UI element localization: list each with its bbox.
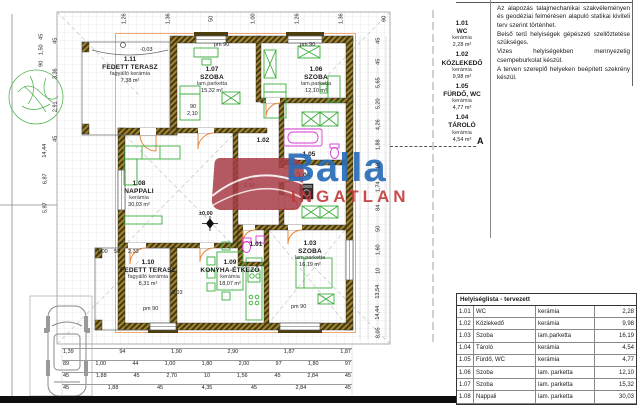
table-cell-number: 1.08: [457, 391, 474, 402]
dimension-value: 1,88: [95, 373, 108, 379]
table-row: 1.04 Tároló kerámia 4,54: [457, 343, 636, 355]
dimension-value: 45: [132, 373, 140, 379]
legend-room-area: 2,28 m²: [434, 42, 490, 48]
table-row: 1.05 Fürdő, WC kerámia 4,77: [457, 355, 636, 367]
dimension-chain-row: 451,88454,35452,8445: [62, 384, 352, 391]
legend-entry: 1.02 KÖZLEKEDŐ kerámia 9,98 m²: [434, 51, 490, 79]
table-cell-name: Szoba: [474, 330, 536, 341]
table-row: 1.02 Közlekedő kerámia 9,98: [457, 318, 636, 330]
dimension-value: 45: [39, 34, 45, 40]
table-cell-area: 12,10: [595, 367, 636, 378]
dimension-value: 1,74: [376, 182, 382, 193]
legend-room-material: kerámia: [434, 67, 490, 74]
dimension-value: 1,50: [39, 45, 45, 56]
lintel-mark: pm 90: [291, 304, 306, 310]
table-cell-number: 1.04: [457, 343, 474, 354]
panel-divider-line: [490, 0, 491, 238]
legend-room-id: 1.01: [434, 20, 490, 28]
section-marker-a: A: [477, 136, 484, 146]
dimension-value: 1,88: [107, 385, 120, 391]
table-cell-material: kerámia: [536, 355, 595, 366]
room-legend-column: 1.01 WC kerámia 2,28 m² 1.02 KÖZLEKEDŐ k…: [434, 20, 490, 146]
dimension-value: 5,65: [376, 77, 382, 88]
legend-room-area: 9,98 m²: [434, 74, 490, 80]
table-cell-area: 16,19: [595, 330, 636, 341]
table-cell-name: Fürdő, WC: [474, 355, 536, 366]
table-cell-name: Tároló: [474, 343, 536, 354]
dimension-value: 97: [275, 361, 283, 367]
dimension-value: 1,80: [307, 361, 320, 367]
dimension-value: 1,00: [164, 361, 177, 367]
table-cell-area: 4,77: [595, 355, 636, 366]
dimension-value: 97: [344, 361, 352, 367]
dimension-value: 45: [53, 38, 59, 44]
dimension-value: 1,87: [339, 349, 352, 355]
dimension-value: 1,00: [94, 361, 107, 367]
dimension-value: 2,70: [165, 373, 178, 379]
table-cell-material: lam. parketta: [536, 367, 595, 378]
level-mark: ±0,00: [199, 211, 213, 217]
dimension-value: 1,26: [296, 13, 302, 24]
dimension-value: 13,54: [376, 285, 382, 299]
dimension-chain-row: 451,88452,70101,56452,8445: [62, 372, 352, 379]
table-row: 1.03 Szoba lam.parketta 16,19: [457, 330, 636, 342]
sheet-right-edge-line: [632, 0, 633, 86]
dimension-value: 1,36: [340, 13, 346, 24]
dimension-value: 1,00: [97, 249, 108, 255]
note-paragraph: Belső terű helyiségek gépészeti szellőzt…: [497, 31, 630, 48]
room-list-table: Helyiséglista - tervezett 1.01 WC kerámi…: [456, 293, 637, 405]
table-cell-name: Szoba: [474, 379, 536, 390]
dimension-value: 4,26: [376, 119, 382, 130]
lintel-mark: pm 90: [143, 306, 158, 312]
dimension-chain-top-left: 451,5090: [36, 34, 48, 66]
level-mark: -0,03: [170, 290, 183, 296]
table-cell-material: kerámia: [536, 306, 595, 317]
legend-room-name: WC: [434, 28, 490, 35]
dimension-value: 45: [250, 385, 258, 391]
table-cell-area: 30,03: [595, 391, 636, 402]
table-cell-material: lam. parketta: [536, 379, 595, 390]
dimension-value: 45: [344, 385, 352, 391]
dimension-value: 1,88: [376, 140, 382, 151]
watermark-brand-subtext: INGATLAN: [291, 188, 410, 205]
dimension-value: 94: [118, 349, 126, 355]
dimension-value: 45: [156, 385, 164, 391]
table-row: 1.06 Szoba lam. parketta 12,10: [457, 367, 636, 379]
floor-plan-sheet: 1.11 FEDETT TERASZ fagyálló kerámia 7,38…: [0, 0, 640, 403]
table-cell-number: 1.01: [457, 306, 474, 317]
table-cell-area: 9,98: [595, 318, 636, 329]
table-cell-material: lam. parketta: [536, 391, 595, 402]
dimension-value: 6,87: [43, 174, 49, 185]
dimension-chain-left-lower: 14,446,875,97: [40, 148, 52, 210]
table-body: 1.01 WC kerámia 2,28 1.02 Közlekedő kerá…: [457, 306, 636, 404]
table-row: 1.07 Szoba lam. parketta 15,32: [457, 379, 636, 391]
legend-room-material: kerámia: [434, 35, 490, 42]
dimension-value: 89: [62, 361, 70, 367]
dimension-value: 1,36: [167, 13, 173, 24]
legend-entry: 1.01 WC kerámia 2,28 m²: [434, 20, 490, 48]
dimension-value: 45: [62, 385, 70, 391]
table-row: 1.01 WC kerámia 2,28: [457, 306, 636, 318]
legend-entry: 1.05 FÜRDŐ, WC kerámia 4,77 m²: [434, 83, 490, 111]
dimension-chain-row: 1,39941,902,901,871,87: [62, 348, 352, 355]
table-cell-material: lam.parketta: [536, 330, 595, 341]
dimension-value: 2,33: [128, 249, 139, 255]
dimension-value: 3,36: [53, 68, 59, 79]
table-cell-number: 1.05: [457, 355, 474, 366]
lintel-mark: pm 90: [214, 42, 229, 48]
dimension-value: 1,87: [283, 349, 296, 355]
dimension-chain-row: 891,00441,001,802,00971,8097: [62, 360, 352, 367]
dimension-value: 90: [39, 60, 45, 66]
table-cell-number: 1.03: [457, 330, 474, 341]
level-mark: -0,03: [140, 47, 153, 53]
dimension-value: 50: [376, 226, 382, 232]
construction-notes: Az alapozás talajmechanikai szakvélemény…: [497, 5, 630, 84]
dimension-value: 84: [376, 205, 382, 211]
note-paragraph: A terven szereplő helyeken beépített sze…: [497, 66, 630, 83]
table-title: Helyiséglista - tervezett: [457, 294, 636, 306]
table-cell-area: 15,32: [595, 379, 636, 390]
legend-room-id: 1.05: [434, 83, 490, 91]
dimension-chain-top: 1,261,36501,001,261,3660: [120, 16, 388, 22]
dimension-value: 2,84: [295, 385, 308, 391]
sheet-bottom-bar: [0, 396, 456, 403]
note-paragraph: Vizes helyiségekben mennyezetig csempebu…: [497, 48, 630, 65]
dimension-value: 10: [203, 373, 211, 379]
table-cell-material: kerámia: [536, 343, 595, 354]
legend-room-material: kerámia: [434, 98, 490, 105]
dimension-value: 45: [376, 38, 382, 44]
dimension-value: 45: [344, 373, 352, 379]
dimension-value: 45: [62, 373, 70, 379]
door-size-mark: 2,10: [187, 111, 198, 117]
dimension-value: 2,90: [227, 349, 240, 355]
dimension-value: 1,26: [123, 13, 129, 24]
dimension-value: 45: [53, 136, 59, 142]
dimension-value: 1,60: [376, 244, 382, 255]
dimension-value: 2,91: [53, 101, 59, 112]
dimension-value: 10: [376, 267, 382, 273]
dimension-value: 5,20: [376, 98, 382, 109]
dimension-value: 60: [382, 16, 388, 22]
dimension-value: 1,00: [251, 13, 257, 24]
dimension-value: 45: [376, 59, 382, 65]
dimension-value: 50: [114, 249, 120, 255]
legend-room-name: FÜRDŐ, WC: [434, 91, 490, 98]
table-cell-number: 1.07: [457, 379, 474, 390]
dimension-value: 14,44: [376, 305, 382, 319]
legend-room-area: 4,77 m²: [434, 105, 490, 111]
legend-room-name: KÖZLEKEDŐ: [434, 60, 490, 67]
dimension-value: 10: [376, 163, 382, 169]
table-cell-area: 4,54: [595, 343, 636, 354]
dimension-chain-left-upper: 453,362,9145: [50, 38, 62, 142]
dimension-value: 4,35: [201, 385, 214, 391]
table-row: 1.08 Nappali lam. parketta 30,03: [457, 391, 636, 403]
door-size-mark: 90: [190, 104, 196, 110]
legend-room-id: 1.02: [434, 51, 490, 59]
dimension-value: 44: [131, 361, 139, 367]
dimension-value: 1,80: [201, 361, 214, 367]
section-line-a: [390, 146, 476, 147]
legend-room-name: TÁROLÓ: [434, 122, 490, 129]
dimension-value: 1,90: [170, 349, 183, 355]
table-cell-area: 2,28: [595, 306, 636, 317]
table-cell-material: kerámia: [536, 318, 595, 329]
lintel-mark: pm 90: [300, 42, 315, 48]
table-cell-number: 1.02: [457, 318, 474, 329]
dimension-value: 2,00: [238, 361, 251, 367]
table-cell-name: Nappali: [474, 391, 536, 402]
dimension-value: 1,39: [62, 349, 75, 355]
table-cell-number: 1.06: [457, 367, 474, 378]
dimension-value: 14,44: [43, 144, 49, 158]
panel-top-rule: [456, 2, 633, 3]
dimension-value: 50: [209, 16, 215, 22]
table-cell-name: Közlekedő: [474, 318, 536, 329]
dimension-value: 1,56: [236, 373, 249, 379]
note-paragraph: Az alapozás talajmechanikai szakvélemény…: [497, 5, 630, 30]
dimension-value: 5,97: [43, 202, 49, 213]
dimension-chain-right: 45455,655,204,261,88101,7484501,601013,5…: [372, 38, 386, 336]
table-cell-name: Szoba: [474, 367, 536, 378]
dimension-value: 8,05: [376, 328, 382, 339]
table-cell-name: WC: [474, 306, 536, 317]
dimension-value: 2,84: [306, 373, 319, 379]
dimension-value: 45: [273, 373, 281, 379]
